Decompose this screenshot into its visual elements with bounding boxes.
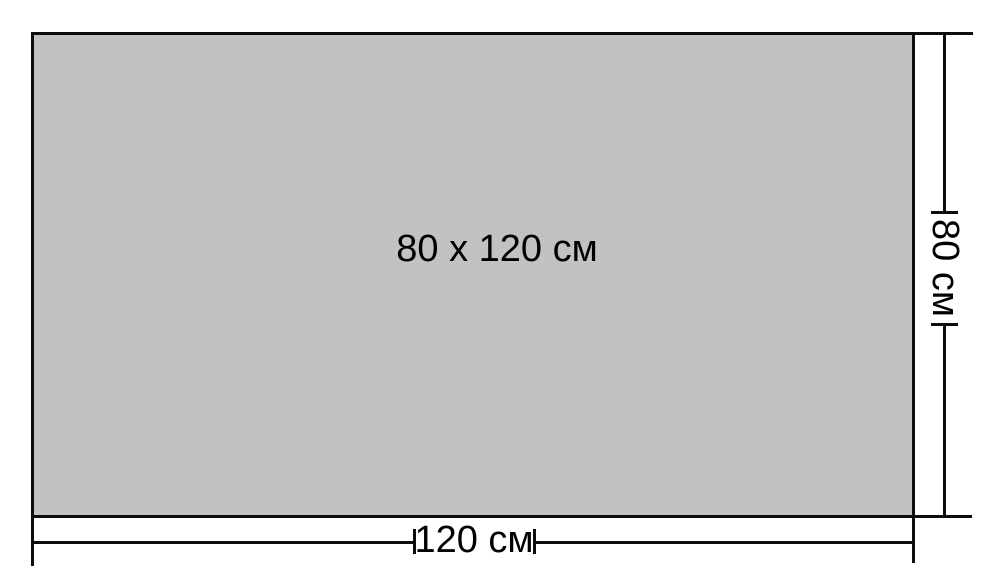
height-dimension-line-lower: [943, 323, 946, 515]
dimension-diagram: 80 x 120 см 80 см 120 см: [0, 0, 1000, 582]
height-dimension-cap-upper: [931, 211, 958, 214]
dimension-rectangle: [31, 32, 915, 518]
height-dimension-label: 80 см: [926, 219, 964, 317]
width-dimension-line-right: [535, 541, 915, 544]
width-dimension-line-left: [32, 541, 413, 544]
extension-line-bottom: [915, 515, 972, 518]
size-label: 80 x 120 см: [396, 230, 597, 268]
width-dimension-label: 120 см: [414, 521, 533, 559]
height-dimension-cap-lower: [931, 323, 958, 326]
height-dimension-line-upper: [943, 33, 946, 212]
